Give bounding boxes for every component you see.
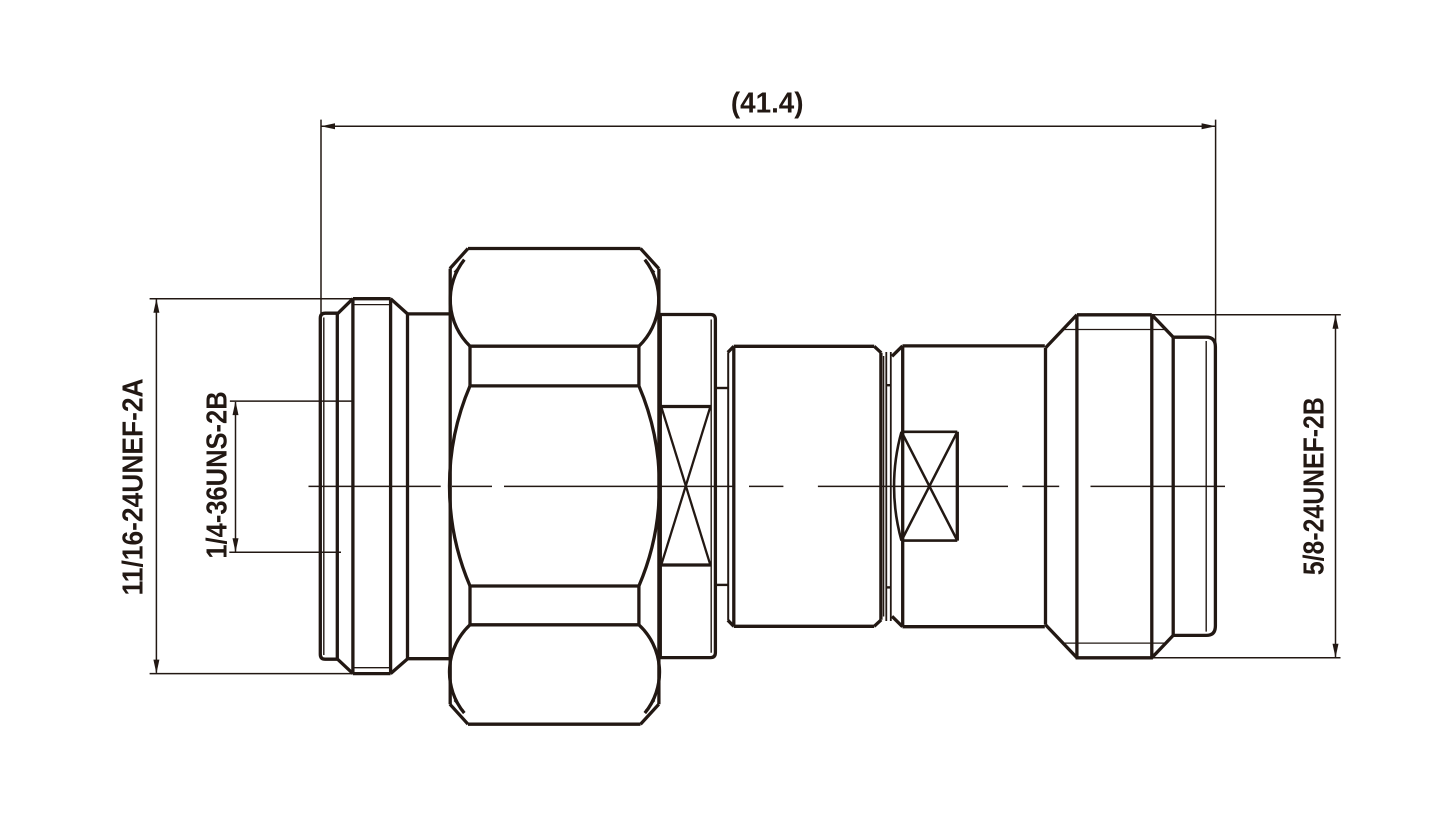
svg-text:11/16-24UNEF-2A: 11/16-24UNEF-2A — [117, 378, 149, 595]
svg-text:1/4-36UNS-2B: 1/4-36UNS-2B — [200, 391, 233, 558]
svg-text:(41.4): (41.4) — [731, 87, 804, 120]
svg-text:5/8-24UNEF-2B: 5/8-24UNEF-2B — [1298, 397, 1330, 575]
